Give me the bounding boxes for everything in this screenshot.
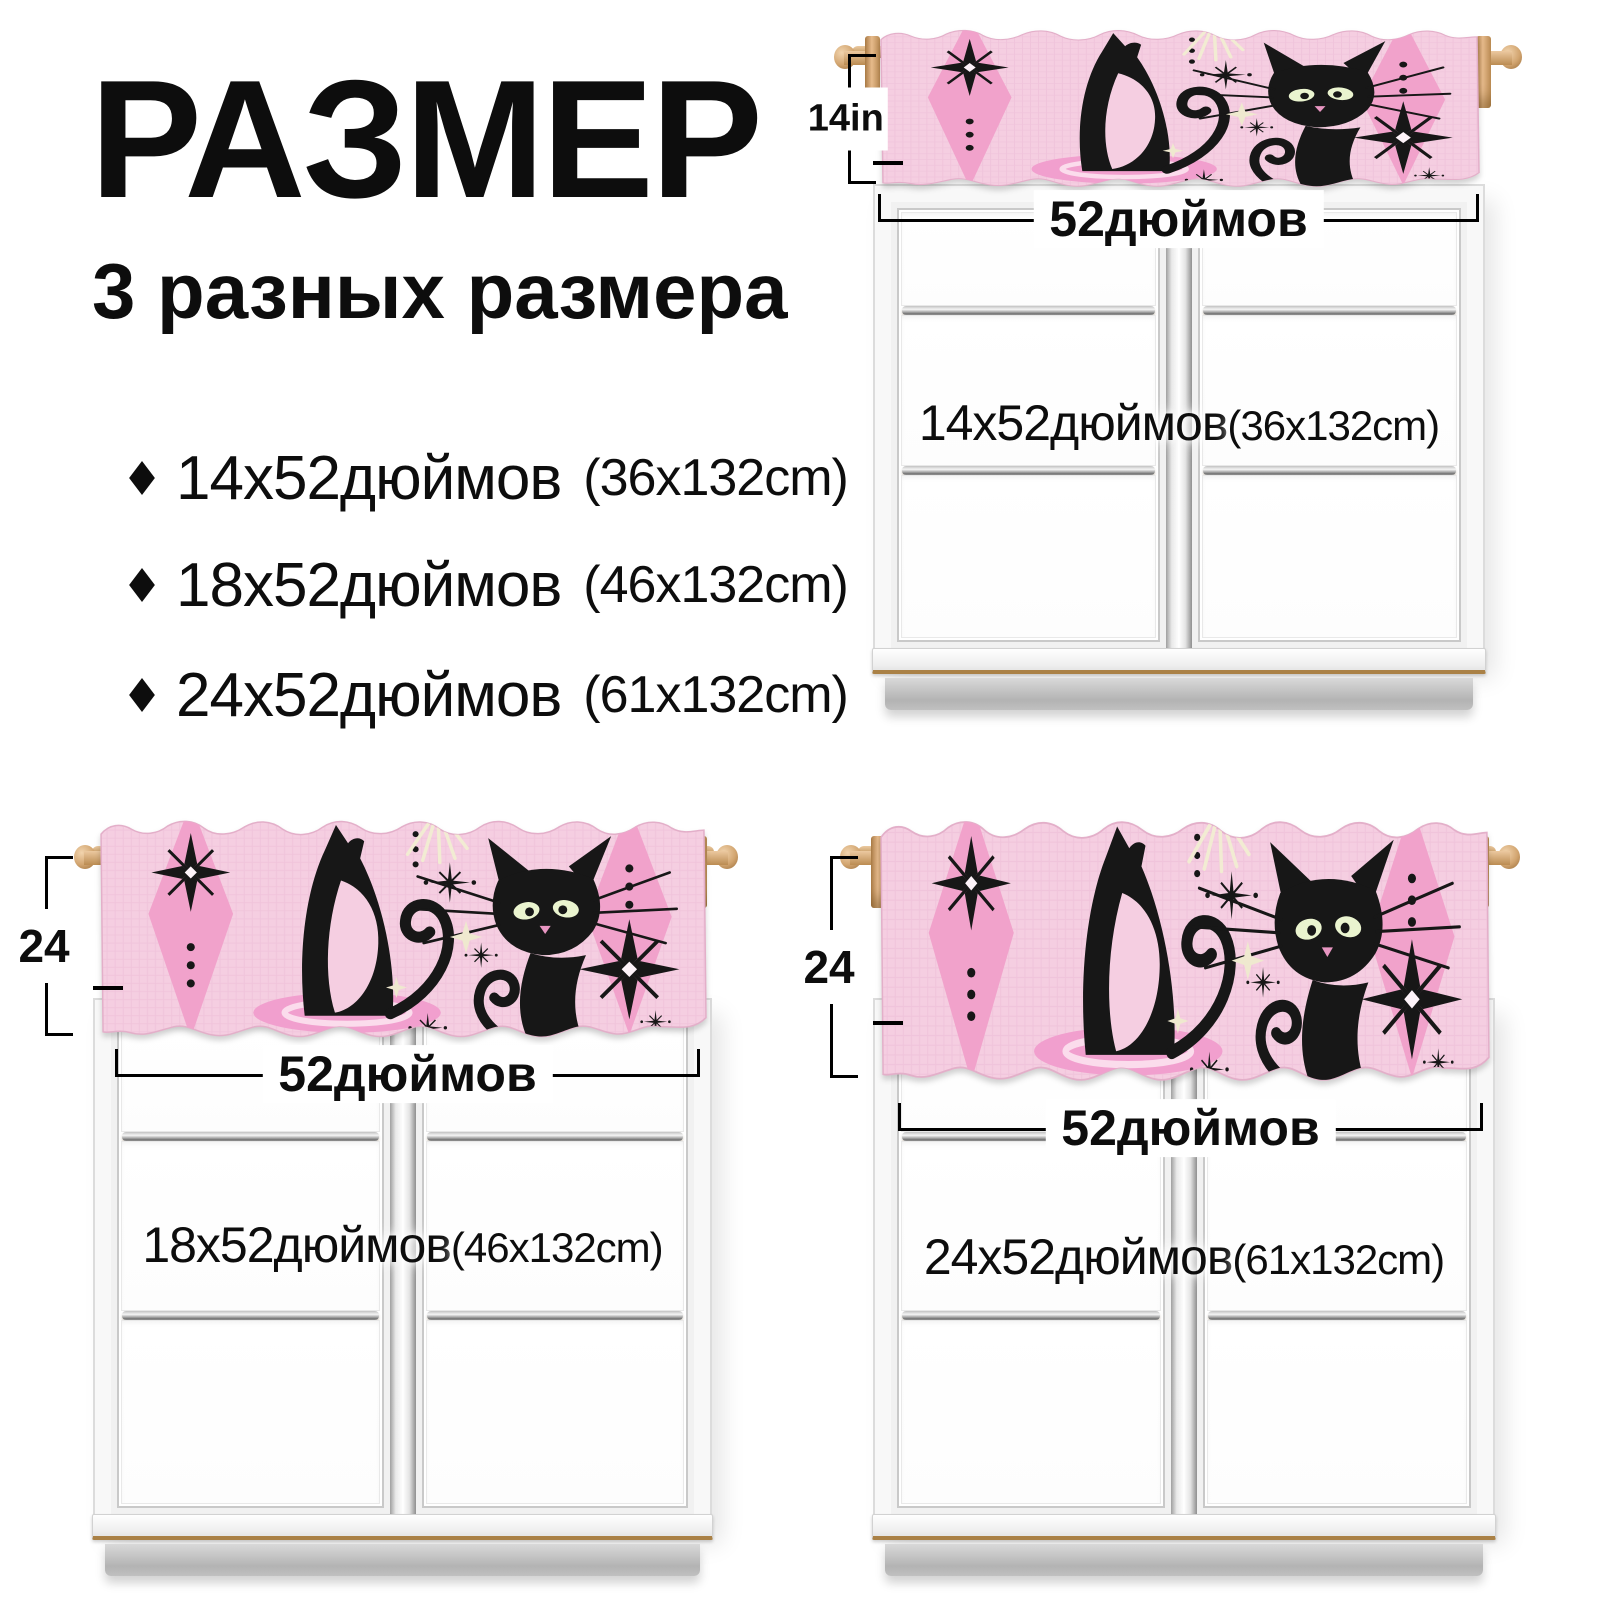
- glazing-bar: [122, 1132, 379, 1141]
- window-pane: [1202, 475, 1457, 638]
- size-inches: 24x52дюймов: [176, 660, 561, 731]
- bracket-tick: [878, 194, 881, 222]
- page-subtitle: 3 разных размера: [92, 246, 788, 337]
- bracket-tick: [830, 1075, 858, 1078]
- bracket-tick: [1480, 1103, 1483, 1131]
- diamond-bullet-icon: [129, 461, 155, 495]
- window-preview-24x52: 24 52дюймов 24x52дюймов(61x132cm): [800, 810, 1560, 1600]
- size-list-item: 24x52дюймов(61x132cm): [130, 662, 848, 728]
- bracket-tick: [697, 1049, 700, 1077]
- size-inches: 18x52дюймов: [176, 550, 561, 621]
- size-list-item: 14x52дюймов(36x132cm): [130, 445, 848, 511]
- height-dimension-label: 24: [14, 909, 73, 983]
- bracket-tick: [898, 1103, 901, 1131]
- window-size-inches: 18x52дюймов: [142, 1217, 451, 1273]
- bracket-tick: [45, 1033, 73, 1036]
- window-size-label: 14x52дюймов(36x132cm): [875, 394, 1483, 452]
- diamond-bullet-icon: [129, 678, 155, 712]
- width-dimension-label: 52дюймов: [1033, 190, 1323, 248]
- window-pane: [901, 475, 1156, 638]
- window-sill: [92, 1514, 713, 1540]
- window-size-metric: (61x132cm): [1232, 1236, 1444, 1283]
- width-dimension-bracket: 52дюймов: [115, 1049, 700, 1077]
- glazing-bar: [902, 466, 1155, 475]
- glazing-bar: [902, 1311, 1160, 1320]
- valance-curtain-art: [875, 818, 1493, 1096]
- width-dimension-bracket: 52дюймов: [878, 194, 1479, 222]
- window-sill: [872, 648, 1486, 674]
- window-size-metric: (36x132cm): [1227, 402, 1439, 449]
- window-preview-18x52: 24 52дюймов 18x52дюймов(46x132cm): [20, 810, 780, 1600]
- window-pane: [1207, 1320, 1467, 1504]
- window-preview-14x52: 14in 52дюймов 14x52дюймов(36x132cm): [780, 22, 1540, 782]
- bracket-tick: [115, 1049, 118, 1077]
- edge-tick: [873, 1021, 903, 1025]
- height-dimension-label: 24: [799, 930, 858, 1004]
- window-size-inches: 14x52дюймов: [919, 395, 1228, 451]
- bracket-tick: [1476, 194, 1479, 222]
- rod-stem: [1488, 51, 1512, 65]
- window-size-inches: 24x52дюймов: [924, 1229, 1233, 1285]
- window-pane: [901, 1320, 1161, 1504]
- window-size-label: 18x52дюймов(46x132cm): [95, 1216, 710, 1274]
- window-pane: [426, 1320, 685, 1504]
- size-list-item: 18x52дюймов(46x132cm): [130, 552, 848, 618]
- valance-curtain-art: [95, 818, 710, 1050]
- glazing-bar: [1203, 466, 1456, 475]
- glazing-bar: [427, 1132, 684, 1141]
- height-dimension-bracket: 24: [830, 856, 860, 1078]
- valance-curtain-art: [875, 28, 1483, 196]
- window-apron: [885, 678, 1473, 710]
- height-dimension-label: 14in: [804, 88, 888, 151]
- window-pane: [121, 1320, 380, 1504]
- window-sill: [872, 1514, 1496, 1540]
- diamond-bullet-icon: [129, 568, 155, 602]
- glazing-bar: [1203, 306, 1456, 315]
- height-dimension-bracket: 14in: [848, 54, 878, 184]
- glazing-bar: [122, 1311, 379, 1320]
- height-dimension-bracket: 24: [45, 856, 75, 1036]
- edge-tick: [93, 986, 123, 990]
- page-title: РАЗМЕР: [90, 55, 760, 223]
- width-dimension-label: 52дюймов: [262, 1045, 552, 1103]
- bracket-tick: [848, 181, 876, 184]
- bracket-tick: [830, 856, 858, 859]
- window-apron: [885, 1544, 1483, 1576]
- window-size-metric: (46x132cm): [451, 1224, 663, 1271]
- bracket-tick: [45, 856, 73, 859]
- window-size-label: 24x52дюймов(61x132cm): [875, 1228, 1493, 1286]
- width-dimension-bracket: 52дюймов: [898, 1103, 1483, 1131]
- glazing-bar: [902, 306, 1155, 315]
- width-dimension-label: 52дюймов: [1045, 1099, 1335, 1157]
- size-infographic: РАЗМЕР 3 разных размера 14x52дюймов(36x1…: [0, 0, 1600, 1600]
- size-inches: 14x52дюймов: [176, 443, 561, 514]
- glazing-bar: [427, 1311, 684, 1320]
- glazing-bar: [1208, 1311, 1466, 1320]
- bracket-tick: [848, 54, 876, 57]
- window-apron: [105, 1544, 700, 1576]
